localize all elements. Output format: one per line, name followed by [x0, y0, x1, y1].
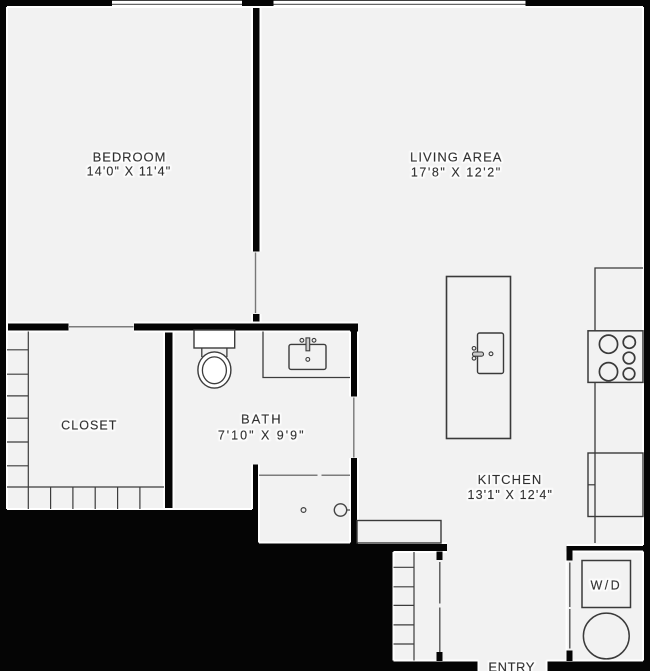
svg-text:BATH: BATH: [241, 411, 283, 426]
svg-text:14'0" X 11'4": 14'0" X 11'4": [87, 165, 172, 179]
svg-text:KITCHEN: KITCHEN: [478, 472, 543, 487]
svg-text:W/D: W/D: [591, 578, 623, 592]
svg-text:7'10" X 9'9": 7'10" X 9'9": [218, 428, 306, 442]
svg-text:ENTRY: ENTRY: [488, 659, 535, 671]
svg-text:BEDROOM: BEDROOM: [93, 149, 167, 164]
svg-text:LIVING AREA: LIVING AREA: [410, 149, 502, 164]
svg-text:13'1" X 12'4": 13'1" X 12'4": [468, 488, 554, 502]
svg-text:CLOSET: CLOSET: [61, 418, 117, 432]
svg-text:17'8" X 12'2": 17'8" X 12'2": [411, 166, 502, 180]
